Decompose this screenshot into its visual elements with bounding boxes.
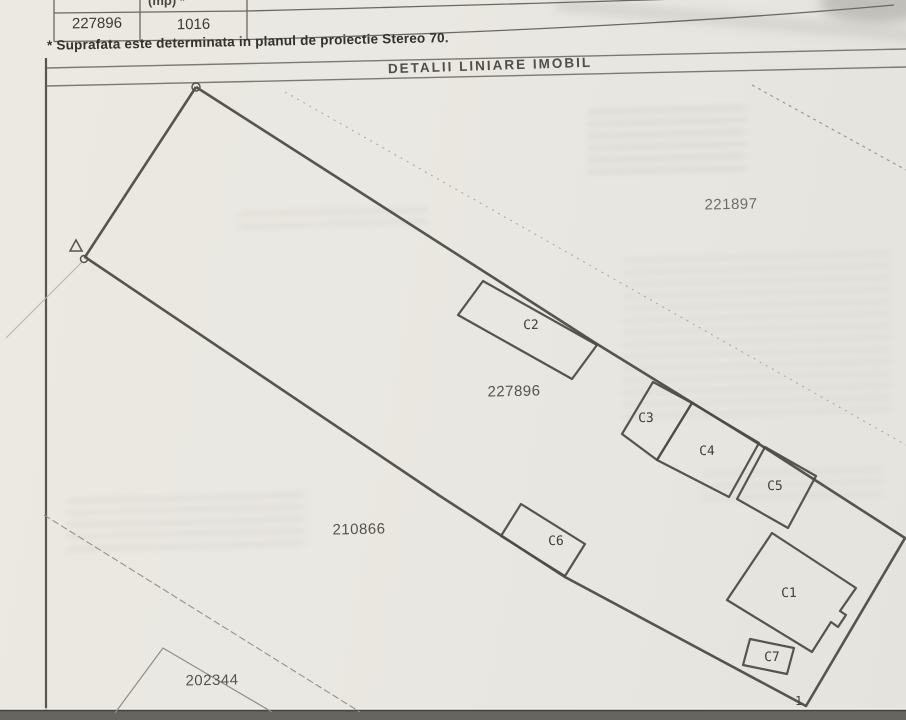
table-cell-area: 1016	[140, 15, 247, 33]
map-frame	[0, 49, 906, 720]
scanned-cadastral-document: (mp) * 227896 1016 * Suprafata este dete…	[0, 0, 906, 720]
parcel-label-227896: 227896	[469, 382, 559, 401]
point-label-1: 1	[795, 694, 802, 708]
cadastral-plan-canvas	[0, 0, 906, 720]
neighbour-boundaries	[6, 85, 906, 713]
building-label-c6: C6	[543, 534, 569, 549]
building-label-c1: C1	[776, 586, 802, 601]
thin-boundary-middle	[285, 92, 906, 445]
table-header-mp: (mp) *	[148, 0, 185, 8]
thin-boundary-west-tail	[6, 262, 82, 338]
thin-boundary-topright	[752, 85, 906, 170]
building-label-c3: C3	[633, 411, 659, 426]
parcel-label-221897: 221897	[686, 195, 776, 214]
parcel-label-210866: 210866	[314, 520, 404, 539]
survey-point-triangle-west	[70, 240, 82, 251]
building-label-c2: C2	[518, 318, 544, 333]
table-cell-parcel-number: 227896	[54, 14, 140, 32]
map-bottom-band	[0, 711, 906, 720]
parcel-label-202344: 202344	[167, 671, 257, 690]
building-label-c7: C7	[759, 650, 785, 665]
building-label-c4: C4	[694, 444, 720, 459]
buildings	[458, 281, 856, 674]
building-label-c5: C5	[762, 479, 788, 494]
